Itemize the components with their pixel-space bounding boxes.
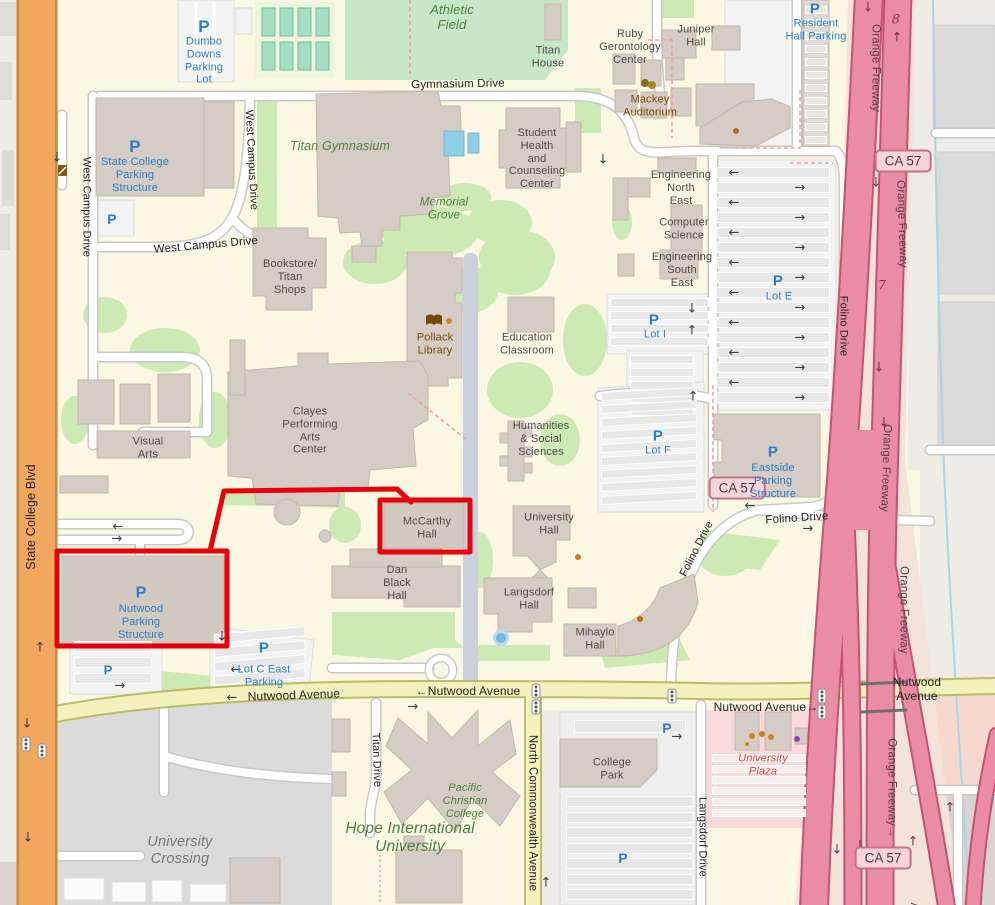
campus-promenade bbox=[463, 253, 478, 690]
swimming-pools bbox=[444, 131, 479, 156]
map-base-layer bbox=[0, 0, 995, 905]
map-canvas[interactable]: ←→↓↓↑↓←→↓←→←→↓↑↑→↑↓↓↑↓↓↓↓↓↑↑←→←→←→←→←→←→… bbox=[0, 0, 995, 905]
